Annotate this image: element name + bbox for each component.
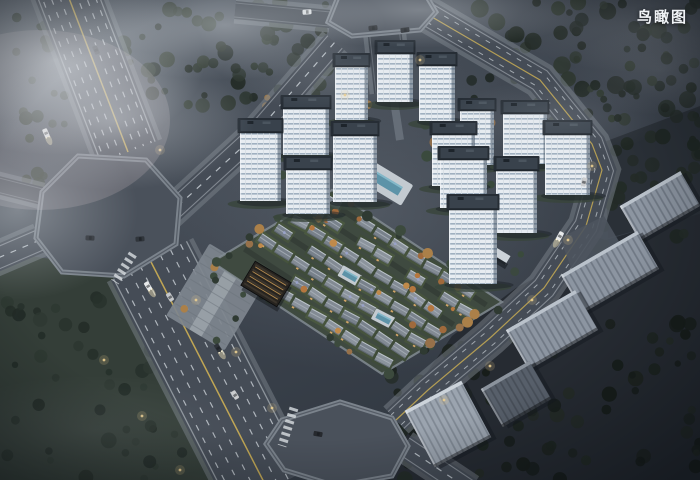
scene-svg xyxy=(0,0,700,480)
view-title-label: 鸟瞰图 xyxy=(637,6,688,27)
aerial-rendering-view: 鸟瞰图 xyxy=(0,0,700,480)
vignette-overlay xyxy=(0,0,700,480)
